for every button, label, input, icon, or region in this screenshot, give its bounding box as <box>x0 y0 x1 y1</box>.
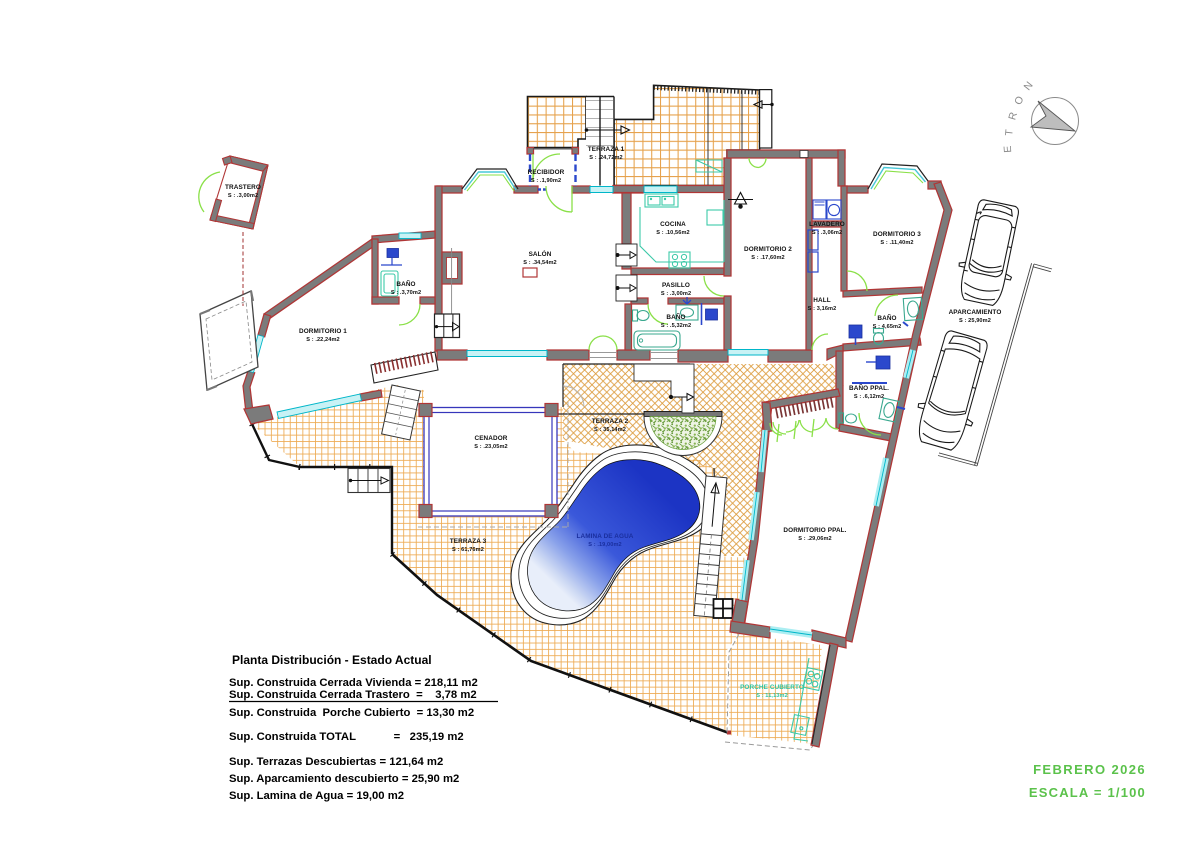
svg-text:DORMITORIO PPAL.: DORMITORIO PPAL. <box>783 527 846 534</box>
svg-text:S : .22,24m2: S : .22,24m2 <box>306 337 340 343</box>
svg-text:S : 3,16m2: S : 3,16m2 <box>808 306 837 312</box>
svg-text:Sup. Construida Cerrada Traste: Sup. Construida Cerrada Trastero = 3,78 … <box>229 689 477 701</box>
svg-text:S : 61,76m2: S : 61,76m2 <box>452 547 484 553</box>
svg-text:Planta Distribución - Estado A: Planta Distribución - Estado Actual <box>232 653 432 667</box>
svg-text:S : .11,40m2: S : .11,40m2 <box>880 240 913 246</box>
svg-text:FEBRERO 2026: FEBRERO 2026 <box>1033 762 1146 777</box>
svg-text:DORMITORIO 3: DORMITORIO 3 <box>873 231 921 238</box>
svg-text:S : .3,06m2: S : .3,06m2 <box>812 230 842 236</box>
svg-text:Sup. Construida TOTAL: Sup. Construida TOTAL = 235,19 m2 <box>229 731 464 743</box>
svg-text:S : .19,00m2: S : .19,00m2 <box>588 542 622 548</box>
svg-text:Sup. Construida Porche Cubier: Sup. Construida Porche Cubierto = 13,30 … <box>229 707 474 719</box>
svg-text:LAVADERO: LAVADERO <box>809 221 845 228</box>
svg-text:S : .6,12m2: S : .6,12m2 <box>854 394 884 400</box>
svg-text:S : 11,13m2: S : 11,13m2 <box>756 693 788 699</box>
svg-text:BAÑO: BAÑO <box>666 312 685 321</box>
svg-text:BAÑO: BAÑO <box>877 313 896 322</box>
svg-text:BAÑO: BAÑO <box>396 279 415 288</box>
svg-text:S : 35,14m2: S : 35,14m2 <box>594 427 626 433</box>
svg-text:S : .5,32m2: S : .5,32m2 <box>661 323 691 329</box>
svg-text:S : 25,90m2: S : 25,90m2 <box>959 318 991 324</box>
svg-text:S : .23,05m2: S : .23,05m2 <box>474 444 508 450</box>
svg-text:DORMITORIO 2: DORMITORIO 2 <box>744 246 792 253</box>
svg-text:TERRAZA 2: TERRAZA 2 <box>592 418 629 425</box>
svg-text:ESCALA = 1/100: ESCALA = 1/100 <box>1029 785 1146 800</box>
svg-text:TERRAZA 1: TERRAZA 1 <box>588 146 625 153</box>
svg-text:S : .17,60m2: S : .17,60m2 <box>751 255 785 261</box>
svg-text:S : .3,70m2: S : .3,70m2 <box>391 290 421 296</box>
svg-text:S : .1,90m2: S : .1,90m2 <box>531 178 561 184</box>
svg-text:BAÑO PPAL.: BAÑO PPAL. <box>849 383 889 392</box>
svg-text:LAMINA DE AGUA: LAMINA DE AGUA <box>576 533 633 540</box>
svg-text:TERRAZA 3: TERRAZA 3 <box>450 538 487 545</box>
svg-text:PORCHE CUBIERTO: PORCHE CUBIERTO <box>740 684 804 691</box>
svg-text:TRASTERO: TRASTERO <box>225 184 261 191</box>
svg-text:APARCAMIENTO: APARCAMIENTO <box>949 309 1002 316</box>
svg-text:PASILLO: PASILLO <box>662 282 690 289</box>
svg-text:RECIBIDOR: RECIBIDOR <box>528 169 565 176</box>
svg-text:S : .10,56m2: S : .10,56m2 <box>656 230 690 236</box>
svg-text:S : .24,72m2: S : .24,72m2 <box>589 155 623 161</box>
svg-text:DORMITORIO 1: DORMITORIO 1 <box>299 328 347 335</box>
svg-text:Sup. Terrazas Descubiertas = 1: Sup. Terrazas Descubiertas = 121,64 m2 <box>229 756 443 768</box>
svg-text:Sup. Construida Cerrada Vivien: Sup. Construida Cerrada Vivienda = 218,1… <box>229 677 478 689</box>
svg-text:Sup. Lamina de Agua = 19,00 m2: Sup. Lamina de Agua = 19,00 m2 <box>229 790 404 802</box>
svg-text:Sup. Aparcamiento descubierto: Sup. Aparcamiento descubierto = 25,90 m2 <box>229 773 459 785</box>
svg-text:S : .34,54m2: S : .34,54m2 <box>523 260 557 266</box>
svg-text:CENADOR: CENADOR <box>474 435 507 442</box>
svg-text:SALÓN: SALÓN <box>529 249 552 258</box>
svg-text:COCINA: COCINA <box>660 221 686 228</box>
svg-text:E: E <box>1002 145 1014 153</box>
svg-text:HALL: HALL <box>813 297 830 304</box>
svg-text:S : 4,65m2: S : 4,65m2 <box>873 324 902 330</box>
svg-text:S : .3,00m2: S : .3,00m2 <box>661 291 691 297</box>
svg-text:S : .3,00m2: S : .3,00m2 <box>228 193 258 199</box>
svg-text:S : .29,06m2: S : .29,06m2 <box>798 536 832 542</box>
